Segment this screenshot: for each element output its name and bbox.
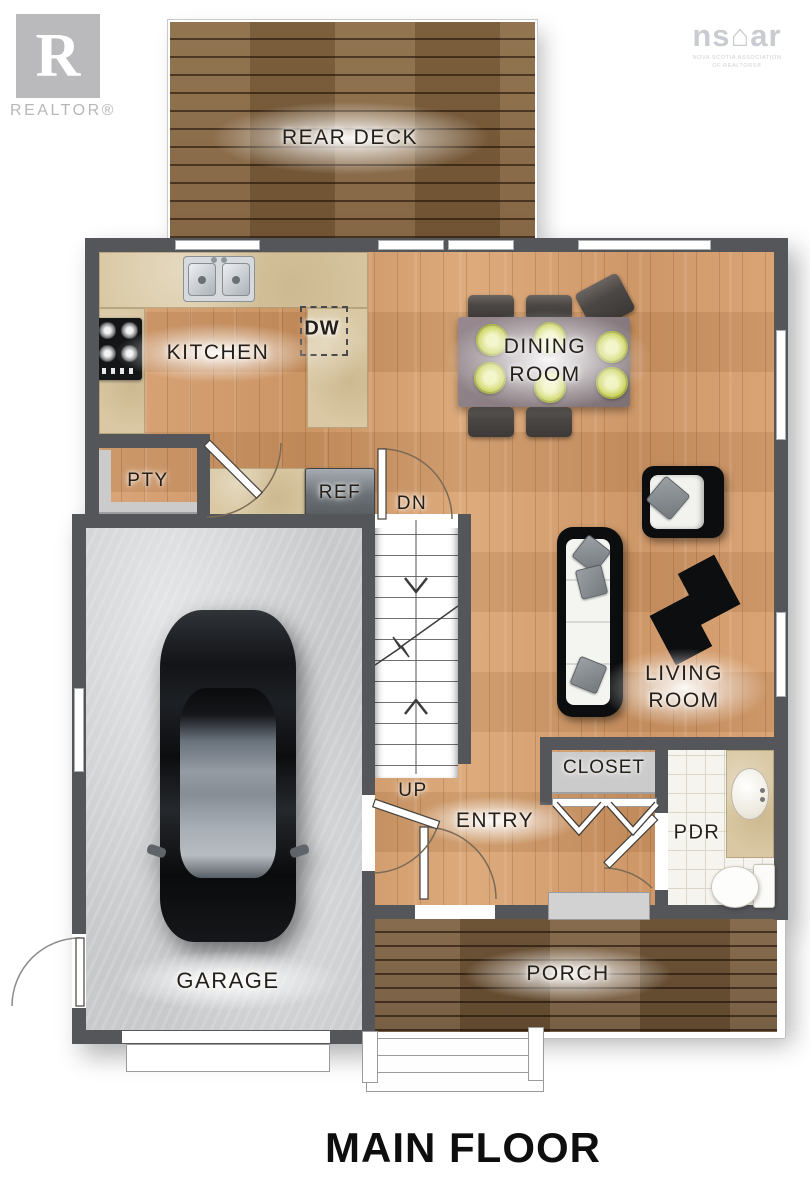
wall-segment — [72, 514, 375, 528]
closet-label: CLOSET — [563, 757, 645, 779]
nsar-subtitle: NOVA SCOTIA ASSOCIATION OF REALTORS® — [676, 54, 798, 71]
wall-segment — [85, 434, 210, 448]
kitchen-sink — [183, 256, 255, 302]
window — [74, 688, 84, 772]
burner-icon — [121, 345, 138, 362]
stair-opening — [375, 514, 458, 528]
front-door-opening — [415, 905, 495, 919]
garage-side-door-arc — [12, 938, 80, 1006]
garage-door-panel — [126, 1044, 330, 1072]
powder-room-opening — [655, 813, 668, 890]
living-room-label-line1: LIVING — [645, 662, 723, 686]
dishwasher-label: DW — [304, 318, 339, 341]
porch-edge-right — [777, 919, 785, 1038]
rear-deck-label: REAR DECK — [282, 126, 418, 150]
porch-steps — [366, 1038, 544, 1092]
dining-chair — [526, 407, 572, 437]
stairs-up-label: UP — [398, 780, 427, 802]
window — [448, 240, 514, 250]
faucet-icon — [211, 257, 217, 263]
nsar-wordmark: ns⌂ar — [676, 20, 798, 51]
sink-drain — [198, 276, 206, 284]
realtor-logo: R — [16, 14, 100, 98]
powder-room-label: PDR — [674, 822, 721, 845]
staircase — [375, 514, 458, 778]
window — [776, 330, 786, 440]
faucet-icon — [760, 797, 765, 802]
window — [378, 240, 444, 250]
closet-threshold — [552, 798, 657, 807]
stove — [96, 318, 142, 380]
wall-segment — [540, 737, 774, 750]
step-line — [367, 1072, 543, 1073]
porch-post — [528, 1027, 544, 1081]
page-title: MAIN FLOOR — [325, 1124, 601, 1172]
garage-entry-opening — [362, 795, 375, 871]
dinner-plate — [474, 362, 506, 394]
porch-label: PORCH — [526, 962, 609, 986]
window — [175, 240, 260, 250]
garage-door-opening — [122, 1031, 330, 1043]
step-line — [367, 1055, 543, 1056]
burner-icon — [121, 322, 138, 339]
pantry-shelf — [99, 502, 197, 514]
nsar-logo: ns⌂ar NOVA SCOTIA ASSOCIATION OF REALTOR… — [676, 20, 798, 71]
dining-chair — [468, 407, 514, 437]
wall-segment — [85, 238, 99, 528]
garage-side-door-opening — [72, 934, 86, 1008]
entry-label: ENTRY — [456, 809, 534, 833]
wall-segment — [362, 514, 375, 1044]
burner-icon — [99, 322, 116, 339]
dining-room-label-line2: ROOM — [509, 363, 580, 387]
dining-room-label-line1: DINING — [504, 335, 587, 359]
fridge-counter — [208, 468, 305, 517]
living-room-label-line2: ROOM — [648, 689, 719, 713]
faucet-icon — [221, 257, 227, 263]
garage-label: GARAGE — [176, 968, 279, 994]
stairs-down-label: DN — [397, 493, 427, 515]
pantry-label: PTY — [127, 470, 168, 492]
stove-knobs — [102, 368, 136, 374]
porch-post — [362, 1031, 378, 1083]
faucet-icon — [760, 788, 765, 793]
window — [578, 240, 711, 250]
dinner-plate — [596, 331, 628, 363]
sink-basin — [188, 263, 216, 296]
realtor-monogram: R — [36, 25, 81, 87]
sink-basin — [222, 263, 250, 296]
toilet-bowl — [711, 866, 759, 908]
fridge-label: REF — [319, 482, 362, 504]
window — [776, 612, 786, 697]
realtor-wordmark: REALTOR® — [8, 102, 118, 120]
house-icon: ⌂ — [731, 18, 751, 53]
wall-segment — [197, 441, 210, 514]
sink-drain — [232, 276, 240, 284]
wall-segment — [458, 514, 471, 764]
bathroom-sink — [731, 768, 769, 820]
kitchen-label: KITCHEN — [167, 341, 270, 365]
burner-icon — [99, 345, 116, 362]
floor-plan-page: R REALTOR® ns⌂ar NOVA SCOTIA ASSOCIATION… — [0, 0, 810, 1200]
car-glass-roof — [180, 688, 276, 878]
entry-stoop — [548, 892, 650, 920]
wall-segment — [540, 750, 552, 805]
dinner-plate — [596, 367, 628, 399]
car — [160, 610, 296, 942]
